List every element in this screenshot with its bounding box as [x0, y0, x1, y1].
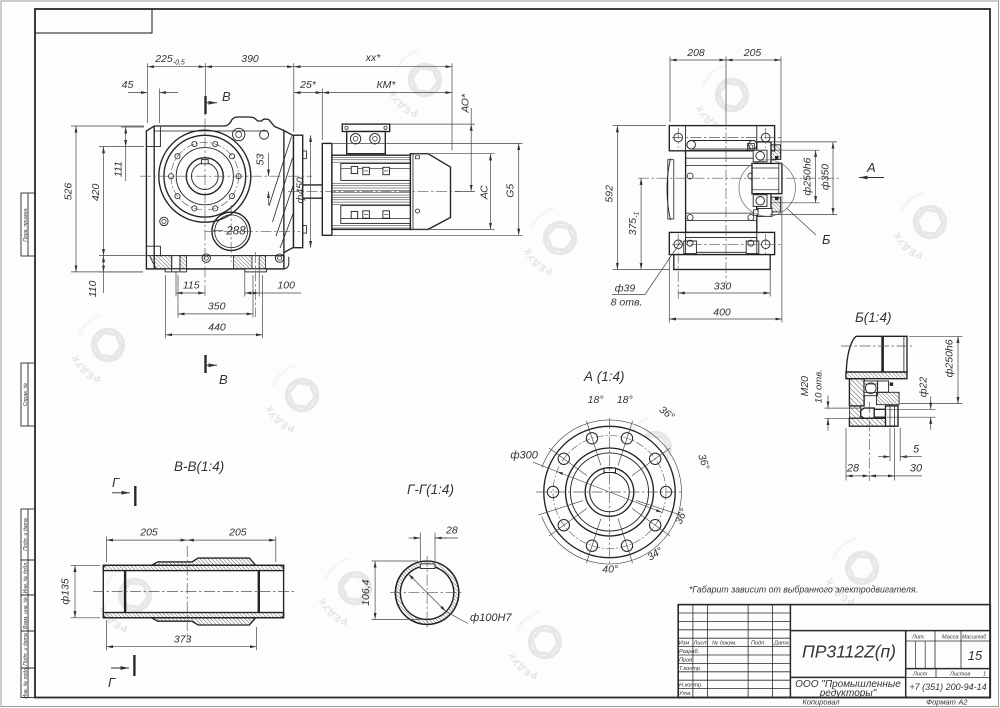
svg-text:*Габарит зависит от выбранного: *Габарит зависит от выбранного электродв…: [689, 585, 918, 595]
svg-text:373: 373: [174, 634, 192, 646]
svg-text:390: 390: [241, 53, 259, 65]
svg-text:36°: 36°: [657, 404, 677, 423]
svg-text:Т.контр.: Т.контр.: [679, 666, 702, 672]
svg-text:ф135: ф135: [60, 578, 72, 604]
svg-text:205: 205: [743, 47, 762, 59]
svg-text:28: 28: [445, 525, 458, 537]
svg-text:440: 440: [208, 321, 226, 333]
svg-text:420: 420: [90, 183, 102, 201]
svg-text:ф250h6: ф250h6: [944, 339, 956, 377]
svg-text:В-В(1:4): В-В(1:4): [174, 459, 224, 474]
svg-text:111: 111: [112, 161, 124, 177]
svg-text:Подп. и дата: Подп. и дата: [23, 518, 29, 551]
svg-text:375-1: 375-1: [627, 212, 641, 236]
svg-text:Утв.: Утв.: [678, 691, 692, 697]
svg-text:40°: 40°: [602, 563, 618, 575]
svg-text:208: 208: [686, 47, 705, 59]
svg-text:Лист: Лист: [912, 672, 928, 678]
svg-text:1: 1: [983, 672, 986, 678]
svg-text:Б(1:4): Б(1:4): [855, 310, 892, 325]
svg-text:526: 526: [63, 183, 75, 201]
svg-text:ф22: ф22: [918, 377, 930, 398]
svg-text:10 отв.: 10 отв.: [814, 369, 825, 403]
svg-text:Взам. инв. №: Взам. инв. №: [23, 597, 29, 629]
svg-text:205: 205: [139, 527, 158, 539]
svg-text:Справ. №: Справ. №: [23, 382, 29, 406]
svg-text:Подп.: Подп.: [751, 641, 766, 647]
svg-text:ф450: ф450: [295, 177, 307, 203]
svg-text:53: 53: [255, 154, 267, 166]
svg-text:Листов: Листов: [949, 672, 970, 678]
svg-text:№ докум.: № докум.: [712, 641, 737, 647]
svg-text:хх*: хх*: [365, 52, 382, 64]
svg-text:18°: 18°: [617, 394, 633, 406]
svg-text:Подп. и дата: Подп. и дата: [23, 633, 29, 666]
svg-text:225-0,5: 225-0,5: [154, 53, 185, 67]
svg-text:КМ*: КМ*: [376, 79, 396, 91]
svg-text:110: 110: [87, 280, 99, 297]
svg-text:Формат: Формат: [926, 698, 956, 707]
svg-text:АО*: АО*: [460, 93, 472, 114]
svg-text:205: 205: [228, 527, 247, 539]
svg-text:5: 5: [913, 444, 920, 456]
svg-text:100: 100: [277, 280, 295, 292]
svg-text:В: В: [219, 372, 228, 387]
svg-text:18°: 18°: [588, 394, 604, 406]
svg-text:288: 288: [225, 226, 246, 238]
svg-text:ф300: ф300: [510, 450, 538, 462]
svg-text:Перв. примен.: Перв. примен.: [23, 207, 29, 241]
svg-text:400: 400: [713, 307, 731, 319]
svg-text:Копировал: Копировал: [802, 698, 840, 707]
svg-text:350: 350: [208, 300, 226, 312]
svg-text:115: 115: [183, 280, 200, 292]
svg-text:Масса: Масса: [942, 635, 959, 641]
svg-text:8 отв.: 8 отв.: [611, 297, 643, 309]
svg-text:+7 (351) 200-94-14: +7 (351) 200-94-14: [909, 682, 986, 692]
svg-text:Инв. № дубл.: Инв. № дубл.: [23, 562, 29, 594]
svg-text:М20: М20: [799, 376, 811, 397]
svg-text:Б: Б: [822, 232, 831, 247]
svg-text:15: 15: [968, 648, 983, 663]
svg-text:ПР3112Z(п): ПР3112Z(п): [802, 642, 896, 662]
svg-text:330: 330: [714, 281, 732, 293]
svg-text:Изм: Изм: [679, 641, 690, 647]
svg-text:36°: 36°: [673, 507, 691, 526]
svg-text:Лист: Лист: [693, 641, 709, 647]
svg-text:А2: А2: [957, 698, 968, 707]
svg-text:592: 592: [603, 185, 615, 203]
svg-text:45: 45: [122, 79, 134, 91]
svg-text:Г: Г: [108, 675, 116, 690]
svg-text:ф250h6: ф250h6: [802, 157, 814, 195]
svg-text:G5: G5: [505, 184, 517, 198]
svg-text:АС: АС: [478, 185, 490, 200]
svg-text:ф100Н7: ф100Н7: [470, 612, 512, 624]
svg-text:106,4: 106,4: [360, 579, 372, 605]
svg-text:А: А: [866, 160, 876, 175]
svg-text:В: В: [222, 89, 231, 104]
svg-text:36°: 36°: [695, 452, 711, 471]
svg-text:Г: Г: [112, 475, 120, 490]
svg-text:25*: 25*: [299, 79, 317, 91]
svg-text:Лит.: Лит.: [911, 635, 925, 641]
svg-text:ф350: ф350: [820, 164, 832, 190]
svg-text:ф39: ф39: [615, 283, 636, 295]
svg-text:Инв. № подл.: Инв. № подл.: [23, 666, 29, 698]
svg-text:Н.контр.: Н.контр.: [679, 683, 703, 689]
svg-text:Разраб.: Разраб.: [679, 649, 699, 655]
svg-text:Пров.: Пров.: [679, 657, 694, 663]
svg-text:30: 30: [910, 463, 923, 475]
svg-text:Масштаб: Масштаб: [962, 635, 987, 641]
svg-text:А (1:4): А (1:4): [583, 369, 625, 384]
svg-text:28: 28: [846, 463, 860, 475]
svg-text:34°: 34°: [645, 545, 665, 564]
svg-text:Дата: Дата: [773, 641, 789, 647]
svg-text:Г-Г(1:4): Г-Г(1:4): [407, 482, 454, 497]
